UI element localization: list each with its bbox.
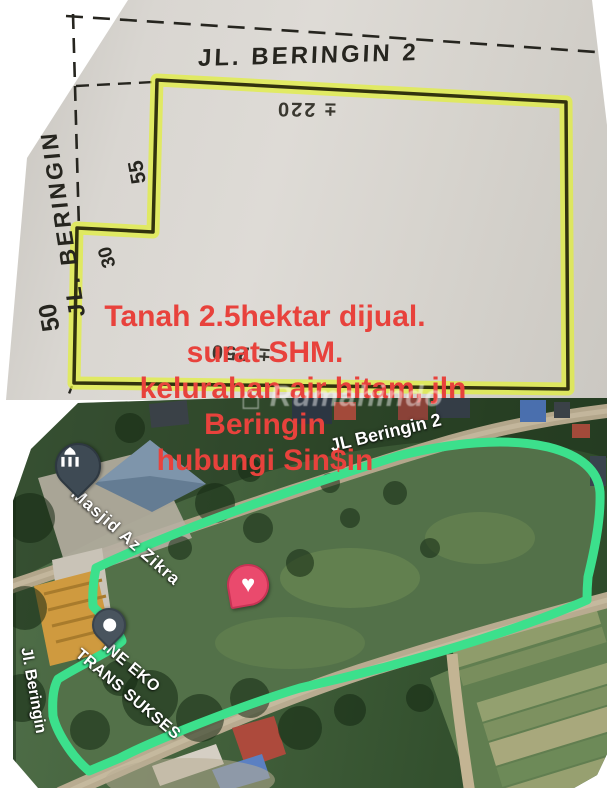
dashed-road-left <box>73 14 79 230</box>
sketch-road-top-label: JL. BERINGIN 2 <box>197 39 419 73</box>
dashed-connector <box>76 82 154 86</box>
overlay-line-1: Tanah 2.5hektar dijual. <box>0 299 530 335</box>
field-patch <box>215 617 365 669</box>
listing-collage: JL. BERINGIN 2 JL. BERINGIN 55 30 50 ± 2… <box>0 0 607 800</box>
site-watermark: ⌂ Rumahindo <box>240 379 444 415</box>
house-icon: ⌂ <box>240 379 262 415</box>
place-dot-icon <box>100 616 118 634</box>
field-patch <box>425 512 535 564</box>
heart-icon: ♥ <box>241 573 255 597</box>
dimension-top: ± 220 <box>276 96 336 120</box>
watermark-text: Rumahindo <box>270 380 444 414</box>
overlay-line-5: hubungi Sin$in <box>0 443 530 479</box>
overlay-line-2: surat SHM. <box>0 335 530 371</box>
